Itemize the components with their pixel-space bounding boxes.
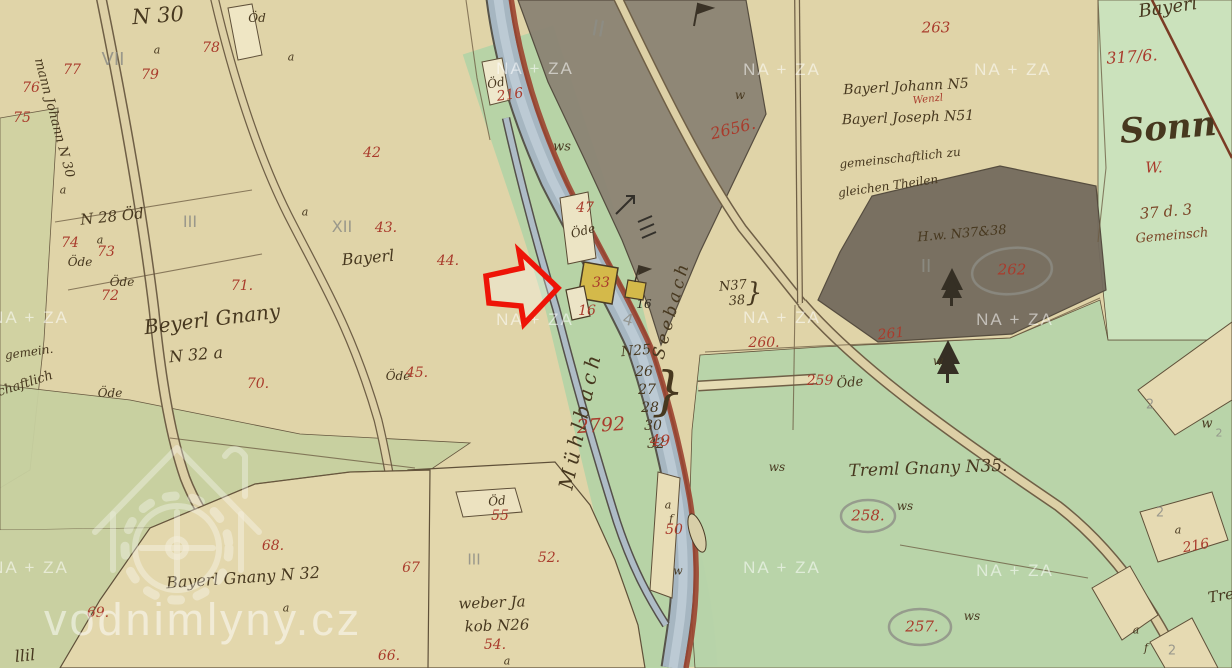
- cadastral-map: N 30mann Johann N 30N 28 ÖdBeyerl GnanyN…: [0, 0, 1232, 668]
- red-arrow-marker: [486, 251, 558, 324]
- arrow-overlay: [0, 0, 1232, 668]
